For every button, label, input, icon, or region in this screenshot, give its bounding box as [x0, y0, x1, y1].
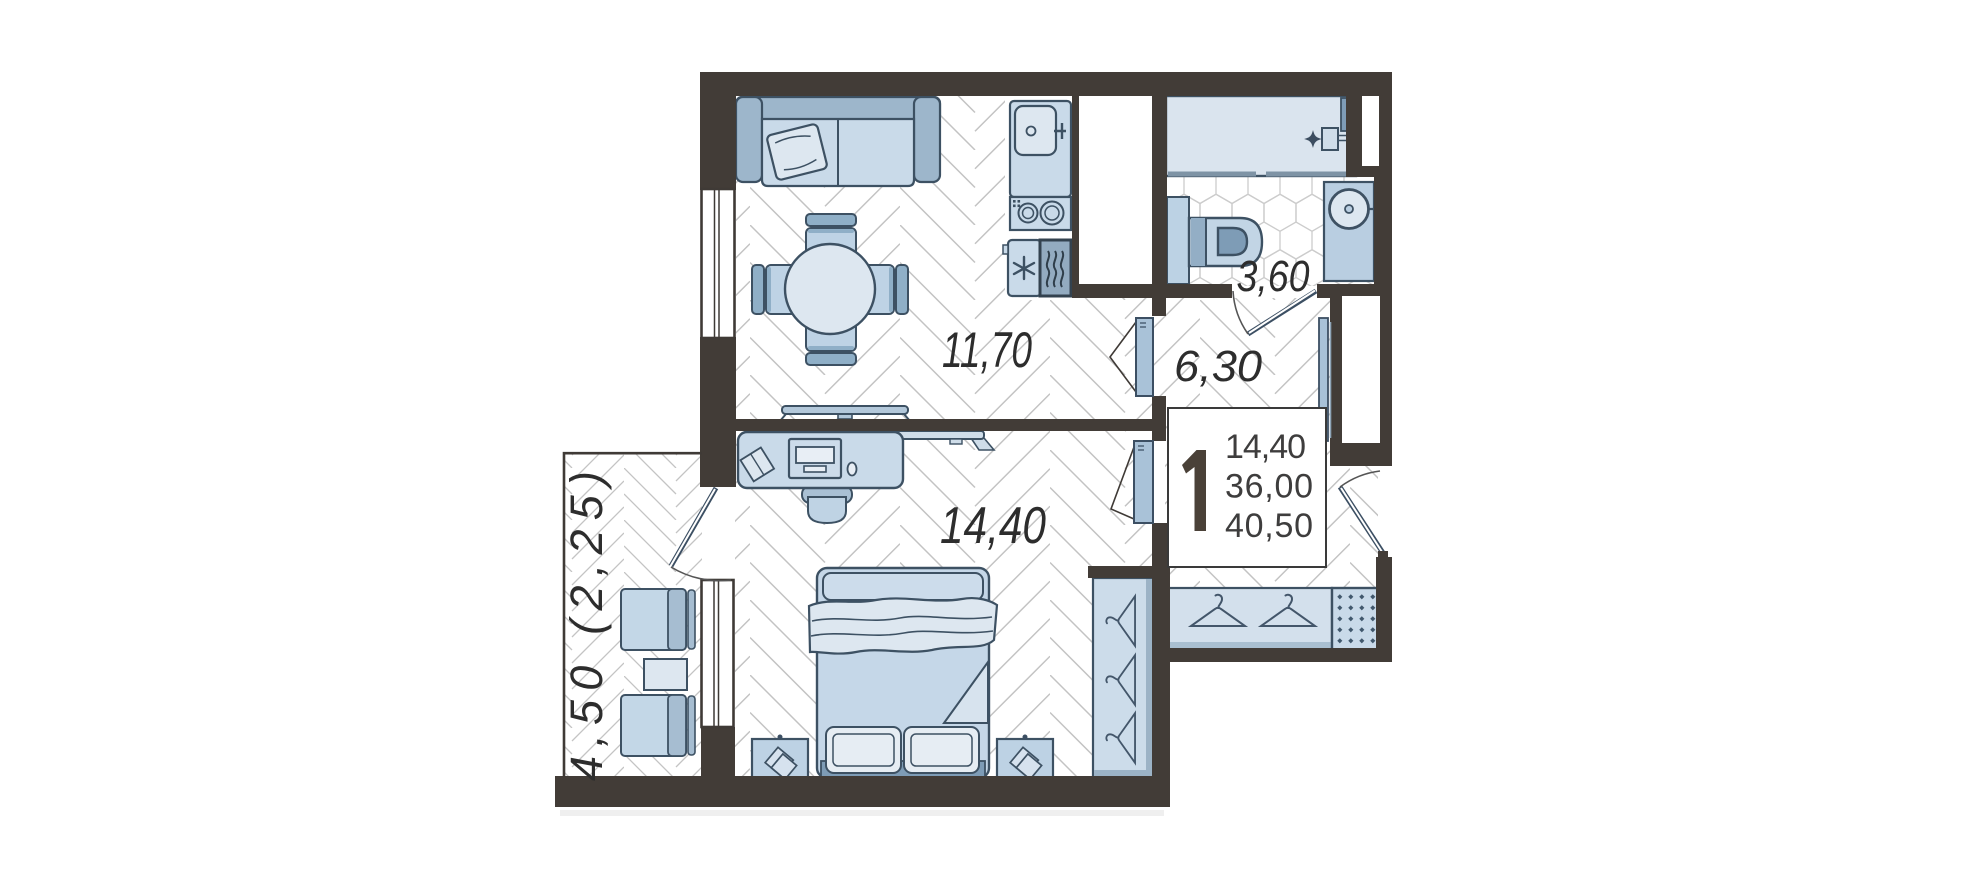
svg-text:11,70: 11,70: [942, 322, 1032, 378]
svg-text:40,50: 40,50: [1225, 507, 1313, 545]
svg-text:3,60: 3,60: [1237, 252, 1310, 301]
svg-text:14,40: 14,40: [940, 497, 1046, 555]
svg-text:36,00: 36,00: [1225, 468, 1313, 506]
svg-text:4,50 (2,25): 4,50 (2,25): [561, 471, 612, 781]
svg-text:6,30: 6,30: [1174, 342, 1263, 391]
svg-text:14,40: 14,40: [1225, 428, 1306, 466]
